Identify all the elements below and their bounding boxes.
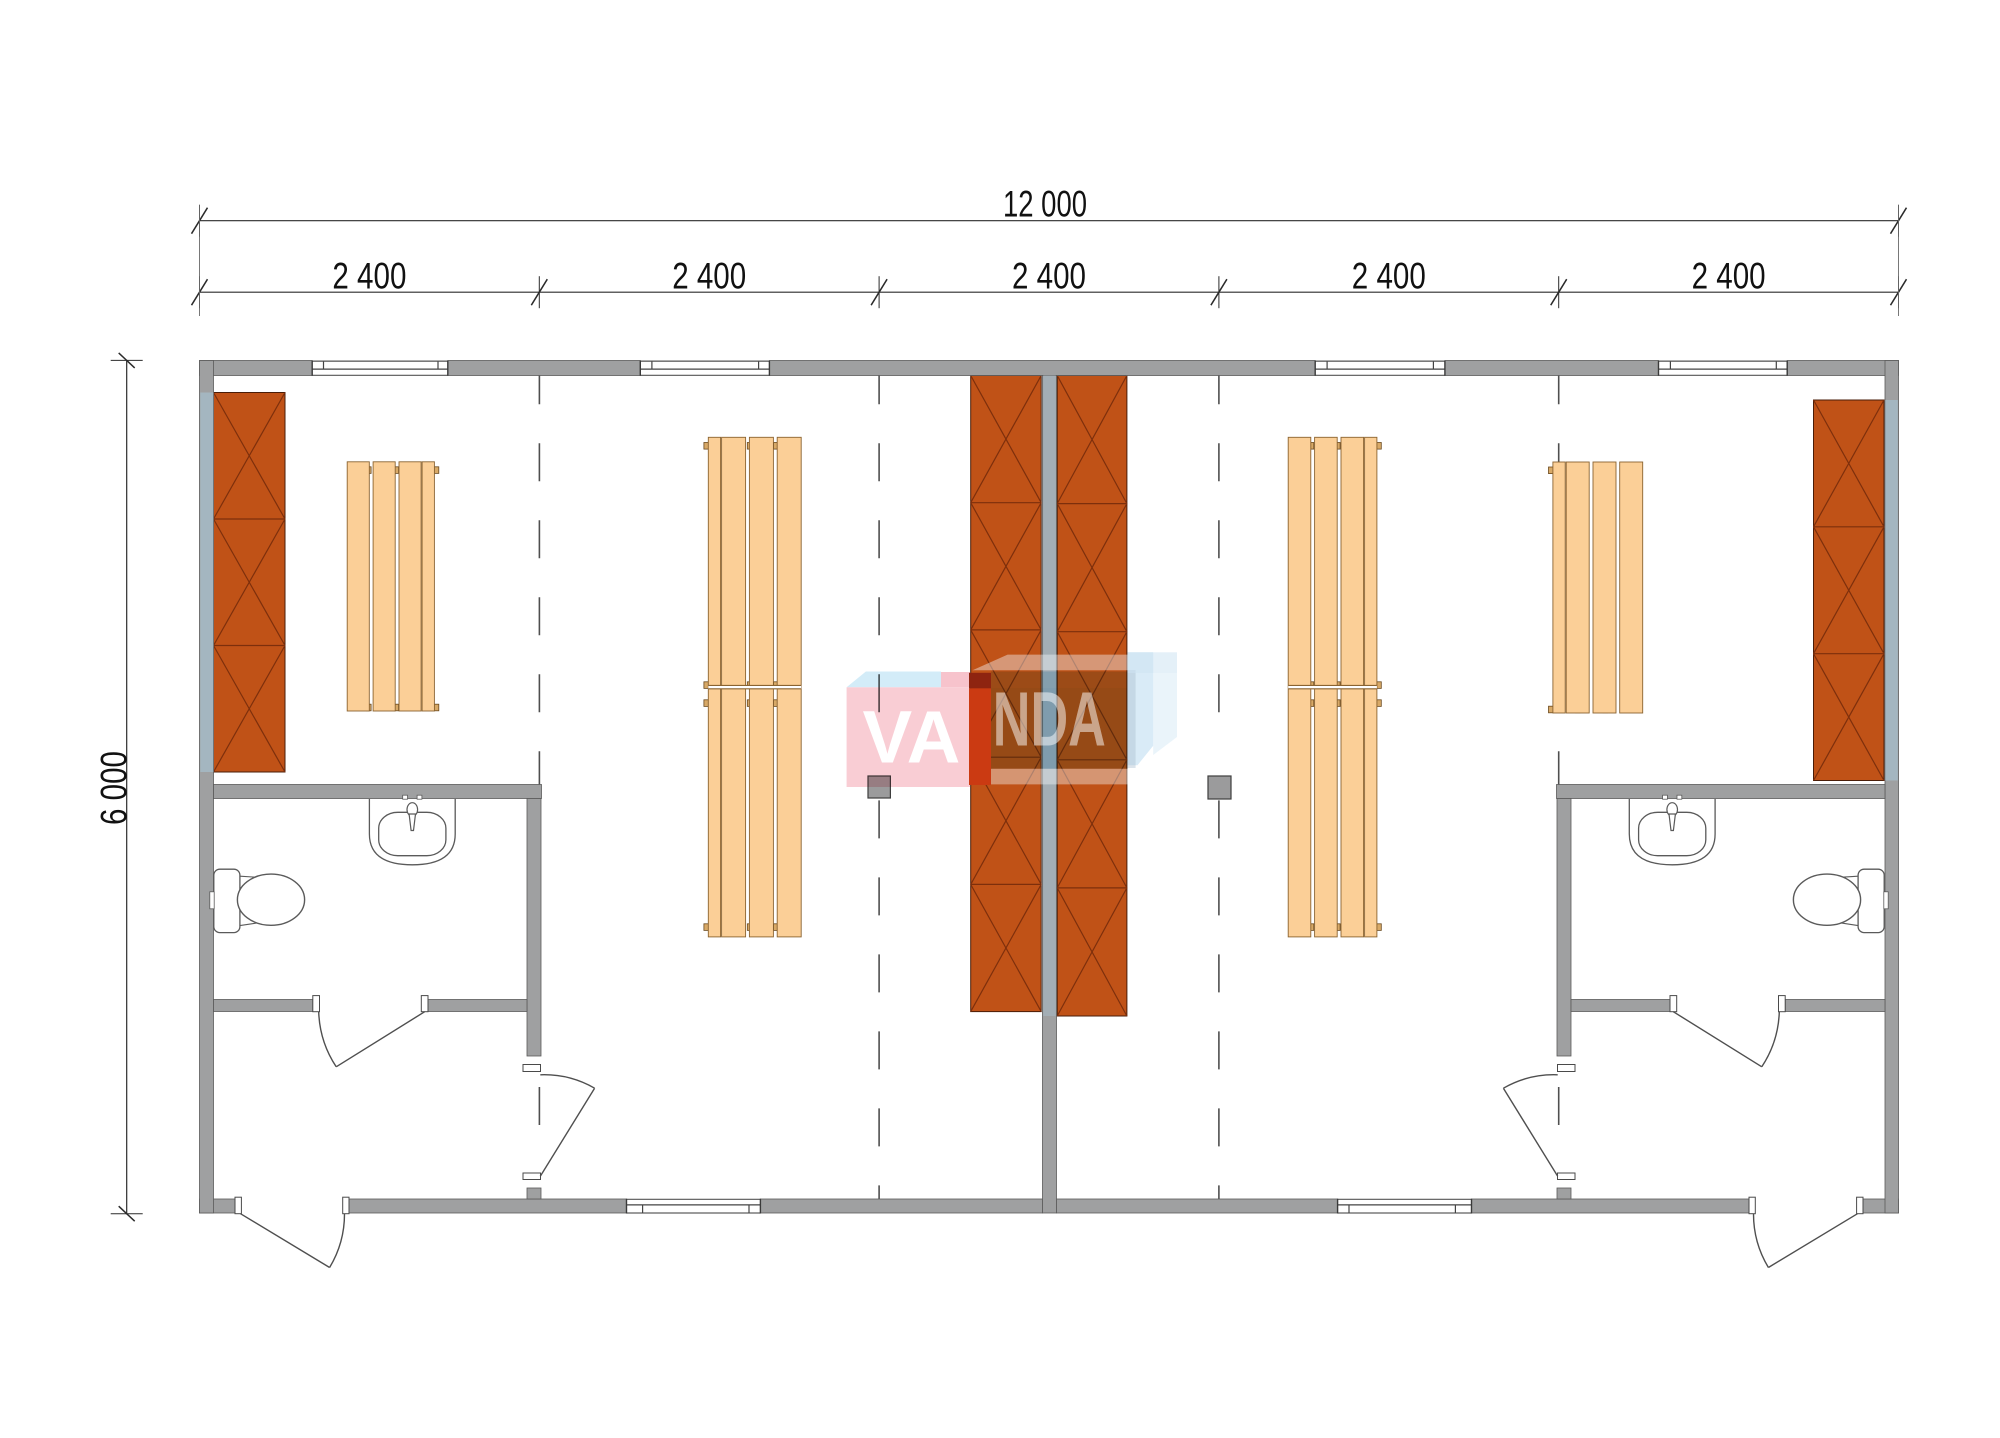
svg-text:6 000: 6 000: [93, 751, 135, 825]
svg-text:2 400: 2 400: [1352, 255, 1426, 297]
svg-text:2 400: 2 400: [1012, 255, 1086, 297]
svg-text:NDA: NDA: [993, 676, 1106, 762]
svg-text:2 400: 2 400: [672, 255, 746, 297]
svg-text:2 400: 2 400: [1692, 255, 1766, 297]
svg-text:2 400: 2 400: [332, 255, 406, 297]
svg-text:12 000: 12 000: [1003, 183, 1087, 225]
